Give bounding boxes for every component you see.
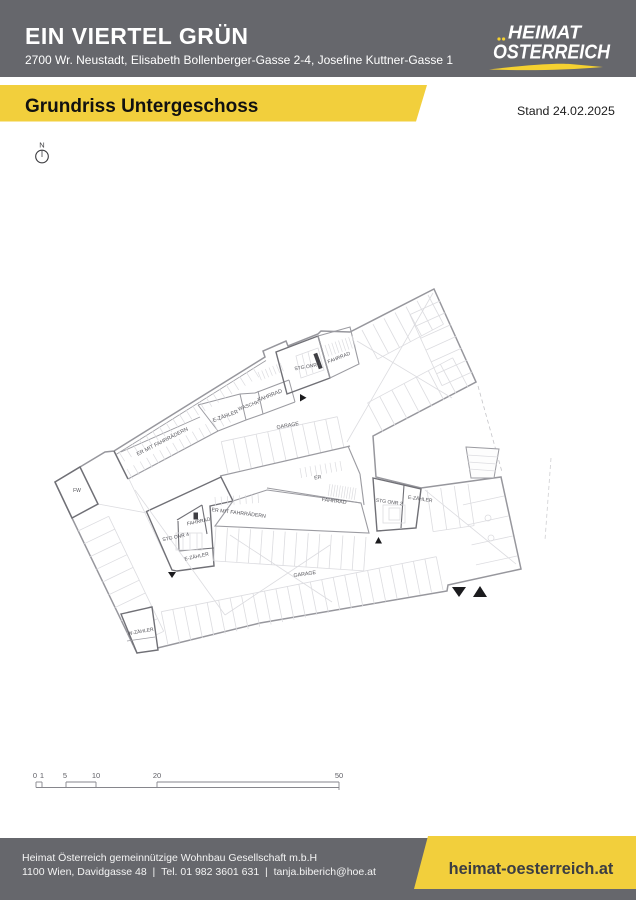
svg-text:FW: FW	[73, 488, 81, 494]
svg-text:0: 0	[33, 771, 37, 780]
svg-text:ER: ER	[314, 474, 322, 481]
svg-text:10: 10	[92, 771, 100, 780]
svg-text:50: 50	[335, 771, 343, 780]
svg-text:N: N	[39, 141, 44, 150]
svg-text:5: 5	[63, 771, 67, 780]
svg-text:20: 20	[153, 771, 161, 780]
svg-text:1: 1	[40, 771, 44, 780]
